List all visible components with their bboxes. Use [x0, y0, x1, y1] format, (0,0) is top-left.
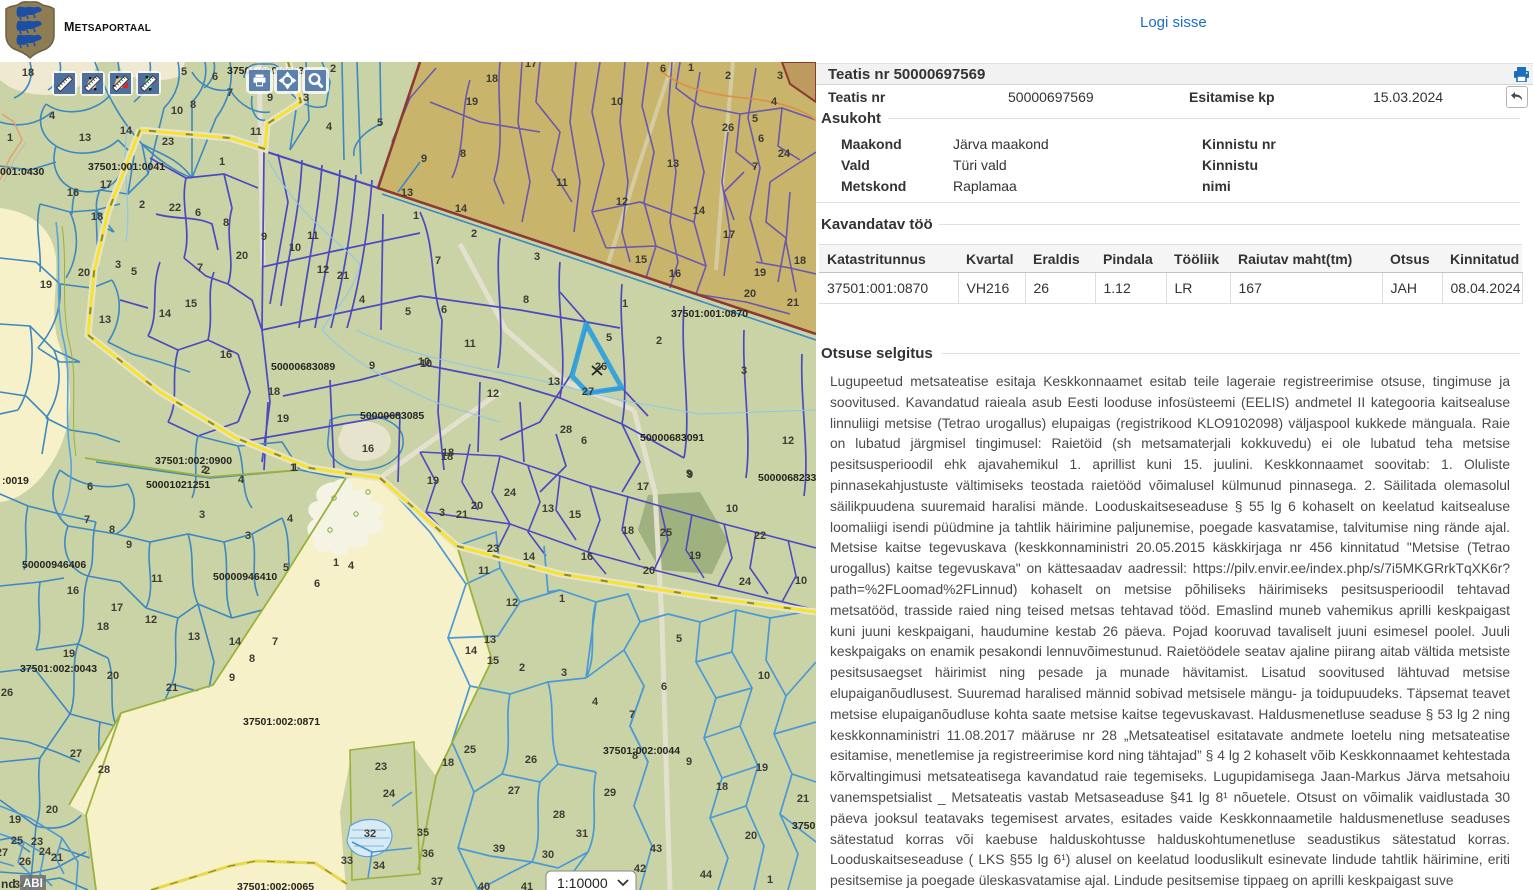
svg-text:6: 6 [581, 435, 587, 447]
svg-text:11: 11 [307, 230, 319, 242]
svg-text:20: 20 [236, 250, 248, 262]
svg-text:12: 12 [317, 264, 329, 276]
svg-text:26: 26 [525, 754, 537, 766]
svg-text:13: 13 [188, 631, 200, 643]
svg-text:27: 27 [508, 785, 520, 797]
svg-text:1: 1 [219, 156, 225, 168]
svg-text:3: 3 [439, 507, 445, 519]
svg-text:18: 18 [622, 525, 634, 537]
svg-text:19: 19 [9, 814, 21, 826]
svg-text:3: 3 [534, 251, 540, 263]
svg-text:18: 18 [441, 451, 453, 463]
svg-text:24: 24 [383, 788, 396, 800]
svg-text:50000683089: 50000683089 [271, 361, 335, 373]
svg-text:14: 14 [455, 203, 468, 215]
svg-text:33: 33 [341, 855, 353, 867]
svg-text:41: 41 [521, 881, 533, 890]
svg-text:15: 15 [569, 509, 581, 521]
svg-text:11: 11 [151, 573, 163, 585]
svg-text:18: 18 [268, 386, 280, 398]
svg-text:12: 12 [487, 388, 499, 400]
svg-text:26: 26 [1, 687, 13, 699]
svg-text:50000946410: 50000946410 [213, 571, 277, 583]
svg-text:39: 39 [493, 843, 505, 855]
svg-text:18: 18 [22, 67, 34, 79]
svg-text:6: 6 [314, 578, 320, 590]
svg-text:8: 8 [109, 524, 115, 536]
svg-text:28: 28 [98, 764, 110, 776]
svg-text:10: 10 [289, 242, 301, 254]
svg-text:9: 9 [261, 231, 267, 243]
svg-text:37501:002:0044: 37501:002:0044 [603, 745, 680, 757]
svg-text:37501:001:0041: 37501:001:0041 [88, 161, 165, 173]
svg-text:25: 25 [660, 527, 672, 539]
svg-text:6: 6 [660, 63, 666, 75]
svg-text:1: 1 [7, 132, 13, 144]
svg-text:4: 4 [49, 110, 56, 122]
svg-text:1: 1 [622, 298, 628, 310]
svg-text:4: 4 [592, 696, 599, 708]
svg-text:17: 17 [723, 229, 735, 241]
svg-text:22: 22 [169, 202, 181, 214]
svg-text:13: 13 [542, 503, 554, 515]
svg-text:21: 21 [797, 793, 809, 805]
svg-text:9: 9 [229, 672, 235, 684]
svg-text:1: 1 [688, 62, 694, 74]
svg-text:20: 20 [471, 500, 483, 512]
svg-text:8: 8 [190, 99, 196, 111]
svg-text:17: 17 [525, 62, 537, 70]
svg-text:3750: 3750 [792, 820, 816, 832]
svg-text:18: 18 [442, 757, 454, 769]
svg-text:1: 1 [290, 462, 296, 474]
svg-text:19: 19 [689, 550, 701, 562]
svg-text:16: 16 [220, 349, 232, 361]
svg-text:21: 21 [166, 682, 178, 694]
svg-text:7: 7 [227, 87, 233, 99]
svg-text:5: 5 [377, 117, 383, 129]
svg-text:19: 19 [756, 762, 768, 774]
svg-text:21: 21 [456, 509, 468, 521]
svg-text:30: 30 [542, 849, 554, 861]
svg-text:13: 13 [667, 158, 679, 170]
svg-text:13: 13 [548, 376, 560, 388]
svg-text:3: 3 [741, 365, 747, 377]
svg-text:40: 40 [478, 881, 490, 890]
svg-text:1: 1 [559, 593, 565, 605]
svg-text:31: 31 [576, 828, 588, 840]
svg-text:1: 1 [333, 557, 339, 569]
svg-text:27: 27 [70, 748, 82, 760]
svg-text:9: 9 [421, 153, 427, 165]
svg-text:2: 2 [330, 63, 336, 75]
svg-text:8: 8 [223, 217, 229, 229]
svg-text:18: 18 [486, 73, 498, 85]
svg-text:43: 43 [650, 843, 662, 855]
svg-text:2: 2 [656, 335, 662, 347]
svg-text:nd: nd [1, 877, 16, 890]
svg-text:4: 4 [326, 121, 333, 133]
svg-text:3: 3 [561, 667, 567, 679]
svg-text:11: 11 [464, 338, 476, 350]
svg-text:14: 14 [229, 636, 242, 648]
svg-text:3: 3 [115, 259, 121, 271]
svg-text:5: 5 [283, 562, 289, 574]
svg-text:14: 14 [523, 551, 536, 563]
svg-text:19: 19 [63, 648, 75, 660]
svg-text:7: 7 [435, 255, 441, 267]
svg-text:18: 18 [716, 781, 728, 793]
svg-text:6: 6 [195, 207, 201, 219]
svg-text:37501:002:0871: 37501:002:0871 [243, 716, 320, 728]
svg-text:14: 14 [120, 125, 133, 137]
svg-text:10: 10 [795, 575, 807, 587]
svg-text:23: 23 [162, 136, 174, 148]
svg-text:28: 28 [553, 809, 565, 821]
svg-text:8: 8 [523, 294, 529, 306]
svg-text:50001021251: 50001021251 [146, 479, 210, 491]
svg-text:8: 8 [249, 653, 255, 665]
svg-text:19: 19 [466, 96, 478, 108]
svg-text:18: 18 [91, 211, 103, 223]
svg-text:8: 8 [460, 148, 466, 160]
svg-text:6: 6 [661, 681, 667, 693]
svg-text:19: 19 [40, 279, 52, 291]
svg-text:16: 16 [581, 551, 593, 563]
svg-text::0019: :0019 [2, 475, 29, 487]
svg-text:1: 1 [767, 874, 773, 886]
svg-text:7: 7 [197, 262, 203, 274]
svg-text:19: 19 [427, 475, 439, 487]
svg-text:20: 20 [744, 288, 756, 300]
svg-text:4: 4 [771, 96, 778, 108]
svg-text:22: 22 [754, 530, 766, 542]
svg-text:50000683085: 50000683085 [360, 410, 424, 422]
svg-text:20: 20 [745, 830, 757, 842]
svg-text:26: 26 [19, 856, 31, 868]
svg-text:13: 13 [99, 314, 111, 326]
svg-text:11: 11 [556, 177, 568, 189]
svg-text:6: 6 [441, 304, 447, 316]
svg-text:23: 23 [487, 543, 499, 555]
svg-text:10: 10 [418, 356, 430, 368]
svg-text:25: 25 [11, 835, 23, 847]
svg-text:27: 27 [0, 847, 8, 859]
svg-text:21: 21 [787, 297, 799, 309]
svg-text:2: 2 [471, 228, 477, 240]
svg-text:6: 6 [758, 133, 764, 145]
svg-text:19: 19 [277, 413, 289, 425]
svg-text:17: 17 [111, 602, 123, 614]
svg-text:12: 12 [145, 614, 157, 626]
svg-text:26: 26 [595, 361, 607, 373]
svg-text:37501:002:0900: 37501:002:0900 [155, 455, 232, 467]
svg-text:15: 15 [487, 655, 499, 667]
svg-text:13: 13 [401, 187, 413, 199]
svg-text:12: 12 [782, 435, 794, 447]
svg-text:37501:002:0065: 37501:002:0065 [237, 881, 314, 890]
svg-text:16: 16 [67, 585, 79, 597]
svg-text:37501:002:0043: 37501:002:0043 [20, 663, 97, 675]
svg-text:14: 14 [465, 645, 478, 657]
svg-text:1:10000: 1:10000 [557, 875, 608, 890]
svg-text:27: 27 [582, 386, 594, 398]
svg-text:17: 17 [100, 179, 112, 191]
svg-text:20: 20 [46, 804, 58, 816]
svg-text:2: 2 [139, 199, 145, 211]
svg-text:11: 11 [250, 126, 262, 138]
svg-text:001:0430: 001:0430 [0, 166, 45, 178]
svg-text:25: 25 [464, 744, 476, 756]
svg-text:37501:001:0870: 37501:001:0870 [671, 308, 748, 320]
svg-text:28: 28 [560, 424, 572, 436]
svg-text:18: 18 [794, 255, 806, 267]
svg-text:10: 10 [726, 503, 738, 515]
svg-text:4: 4 [348, 560, 355, 572]
svg-text:20: 20 [643, 565, 655, 577]
svg-text:14: 14 [693, 205, 706, 217]
svg-text:13: 13 [484, 634, 496, 646]
svg-text:14: 14 [159, 308, 172, 320]
svg-text:5000068233: 5000068233 [758, 472, 816, 484]
svg-text:44: 44 [700, 869, 713, 881]
svg-text:9: 9 [687, 469, 693, 481]
svg-text:2: 2 [519, 662, 525, 674]
svg-text:35: 35 [417, 827, 429, 839]
svg-text:37: 37 [431, 876, 443, 888]
svg-text:50000683091: 50000683091 [640, 432, 704, 444]
svg-text:6: 6 [212, 71, 218, 83]
svg-text:ABI: ABI [23, 878, 43, 890]
svg-text:5: 5 [606, 332, 612, 344]
svg-text:10: 10 [611, 96, 623, 108]
svg-text:36: 36 [422, 848, 434, 860]
svg-text:20: 20 [78, 267, 90, 279]
svg-text:5: 5 [131, 266, 137, 278]
svg-text:32: 32 [364, 828, 376, 840]
svg-text:17: 17 [637, 481, 649, 493]
svg-text:4: 4 [359, 294, 366, 306]
svg-text:26: 26 [722, 122, 734, 134]
svg-text:12: 12 [506, 597, 518, 609]
svg-text:24: 24 [778, 148, 791, 160]
svg-text:4: 4 [287, 513, 294, 525]
svg-text:24: 24 [504, 487, 517, 499]
svg-text:16: 16 [362, 443, 374, 455]
svg-text:4: 4 [238, 474, 245, 486]
svg-text:13: 13 [79, 132, 91, 144]
svg-text:7: 7 [752, 161, 758, 173]
svg-text:5: 5 [752, 113, 758, 125]
svg-text:34: 34 [373, 860, 386, 872]
svg-text:10: 10 [758, 670, 770, 682]
svg-text:5: 5 [676, 633, 682, 645]
svg-text:9: 9 [126, 539, 132, 551]
svg-text:9: 9 [369, 360, 375, 372]
svg-text:7: 7 [629, 709, 635, 721]
svg-text:1: 1 [413, 210, 419, 222]
svg-text:16: 16 [669, 268, 681, 280]
svg-text:2: 2 [725, 70, 731, 82]
svg-text:24: 24 [739, 576, 752, 588]
svg-text:3: 3 [777, 70, 783, 82]
svg-text:7: 7 [272, 636, 278, 648]
svg-text:20: 20 [107, 670, 119, 682]
svg-text:18: 18 [97, 621, 109, 633]
svg-text:29: 29 [604, 787, 616, 799]
svg-text:50000946406: 50000946406 [22, 559, 86, 571]
svg-text:15: 15 [635, 254, 647, 266]
svg-text:3: 3 [199, 509, 205, 521]
svg-text:19: 19 [754, 267, 766, 279]
svg-text:11: 11 [478, 565, 490, 577]
svg-text:9: 9 [686, 756, 692, 768]
svg-text:5: 5 [181, 66, 187, 78]
svg-text:23: 23 [375, 761, 387, 773]
svg-text:21: 21 [337, 270, 349, 282]
svg-text:10: 10 [171, 105, 183, 117]
svg-text:15: 15 [185, 298, 197, 310]
svg-text:3: 3 [245, 530, 251, 542]
svg-text:5: 5 [405, 306, 411, 318]
svg-text:16: 16 [67, 187, 79, 199]
svg-text:7: 7 [84, 514, 90, 526]
svg-text:6: 6 [87, 481, 93, 493]
svg-text:21: 21 [51, 852, 63, 864]
svg-text:12: 12 [616, 196, 628, 208]
